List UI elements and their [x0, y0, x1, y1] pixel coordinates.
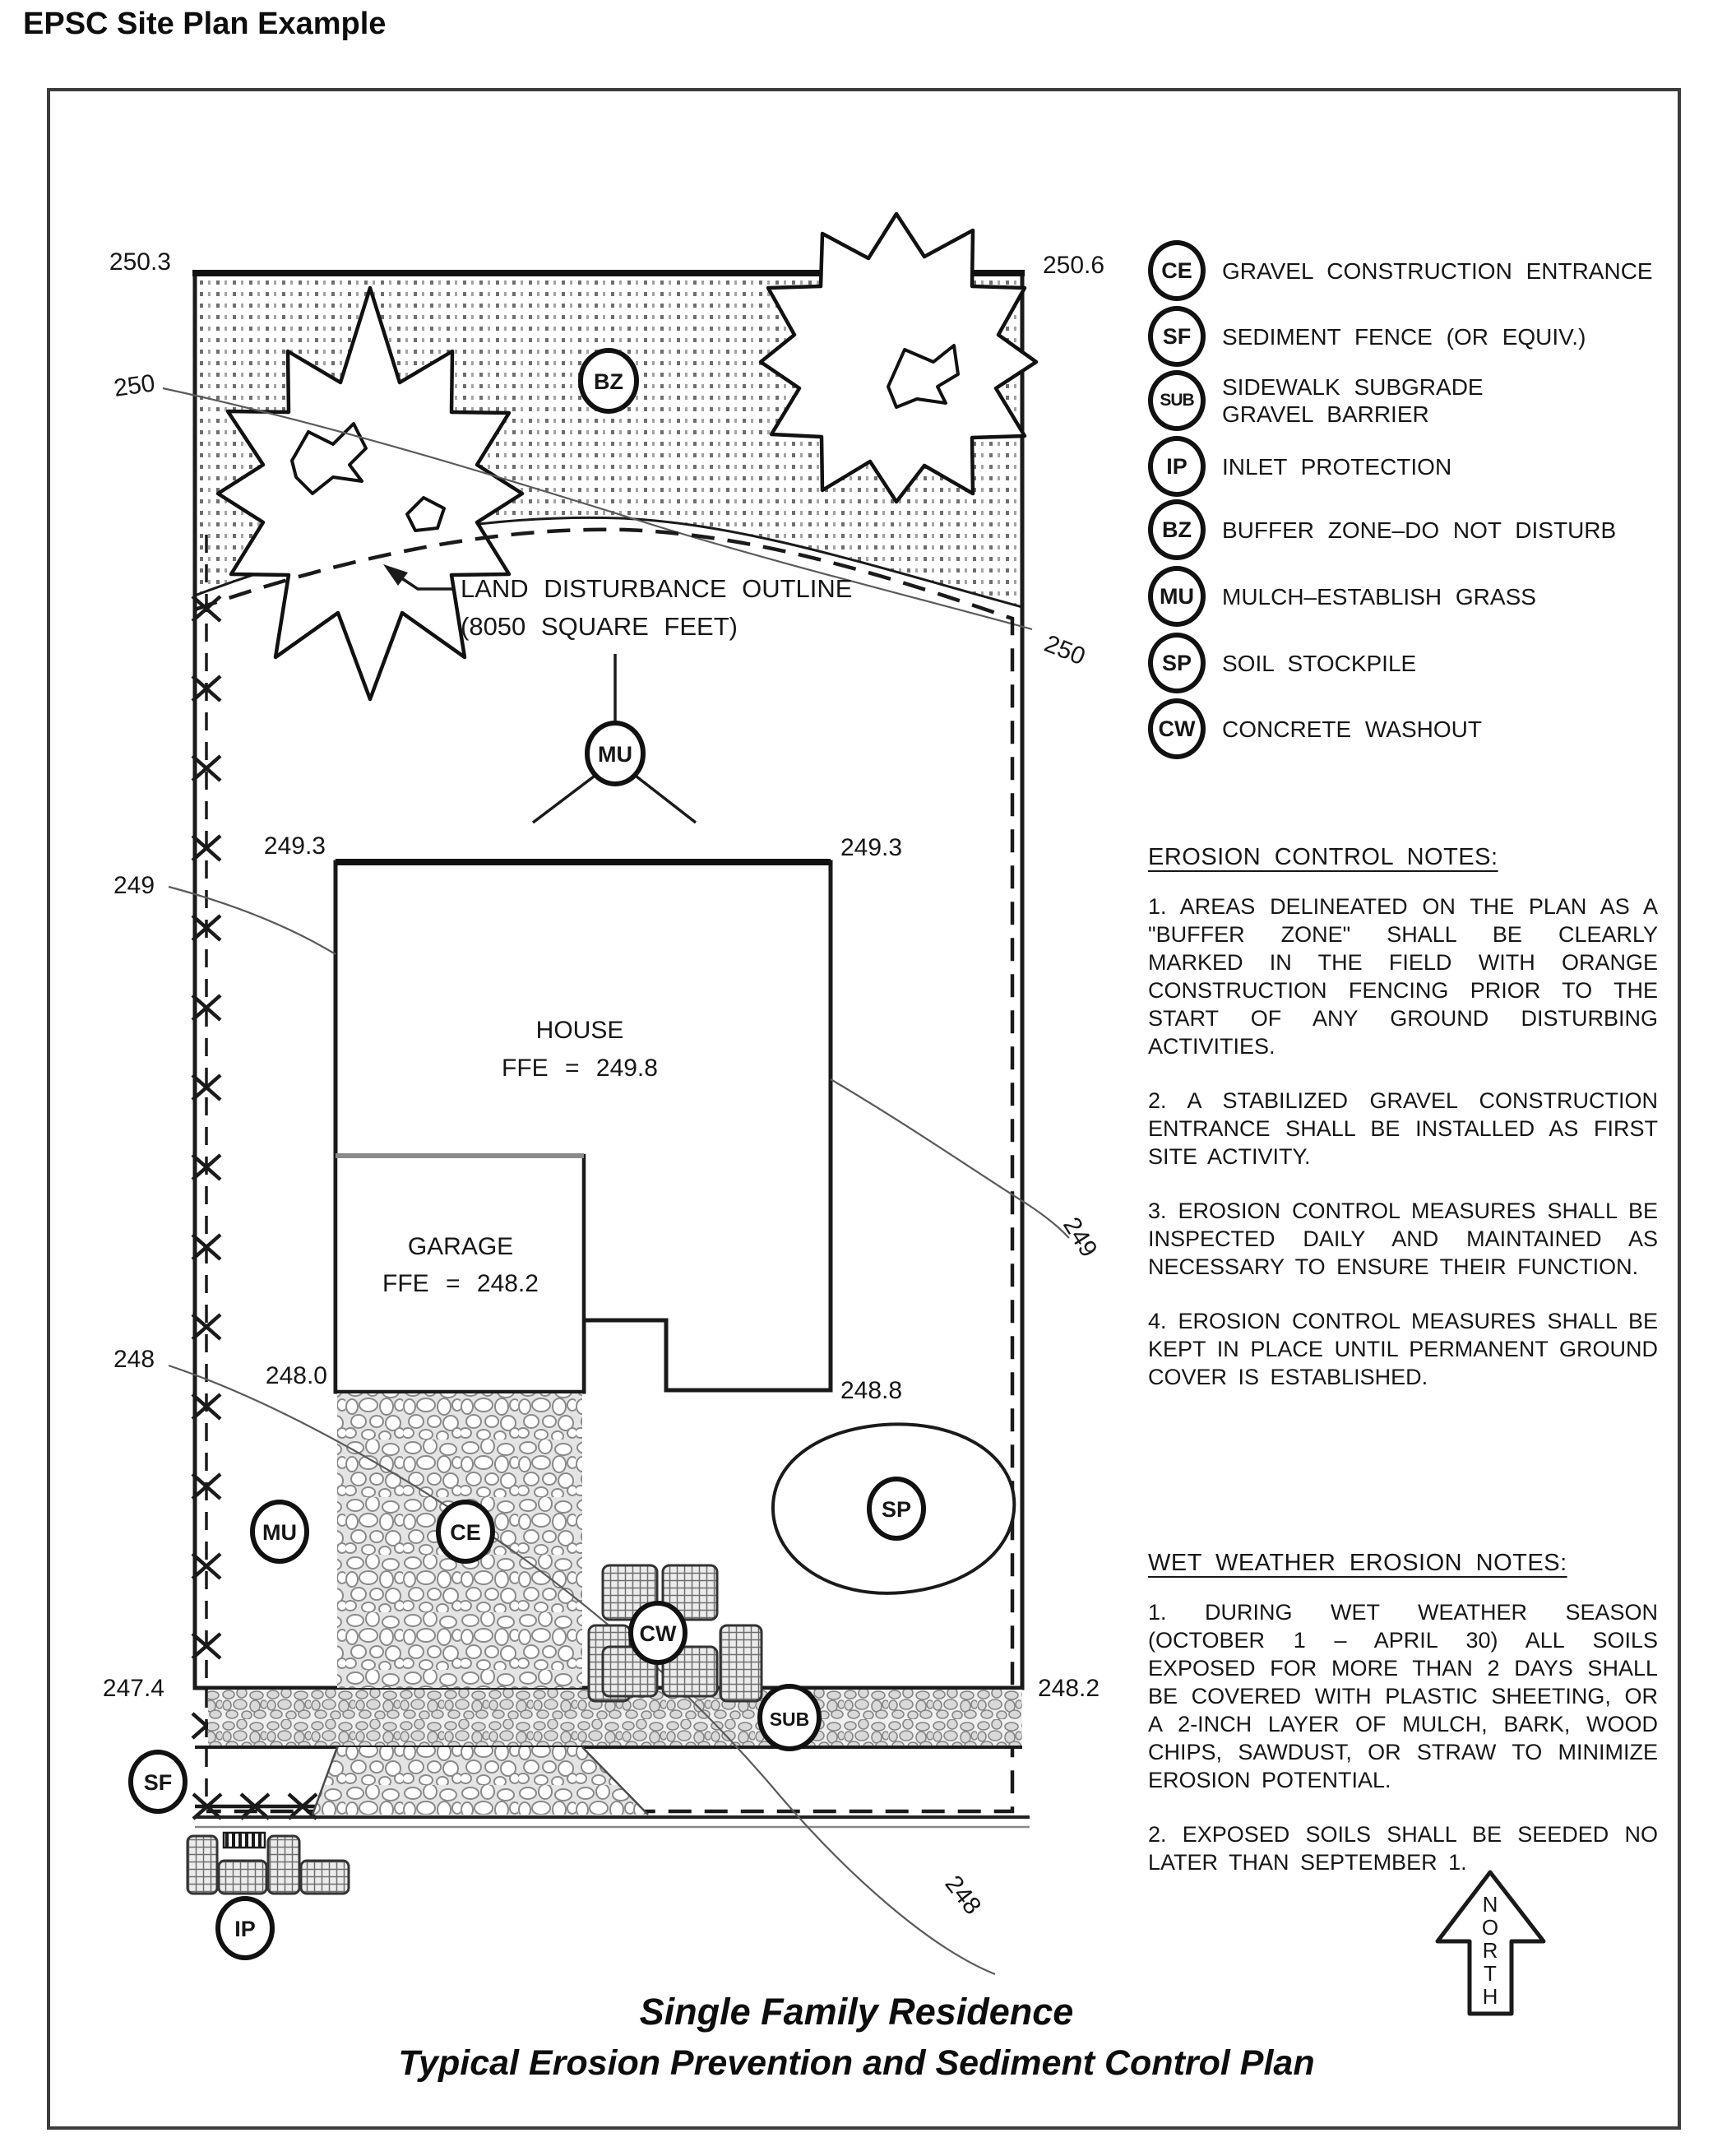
legend-label: SEDIMENT FENCE (OR EQUIV.) — [1222, 323, 1586, 350]
legend-item-ip: IP INLET PROTECTION — [1148, 436, 1451, 497]
inlet-grate — [224, 1833, 265, 1848]
erosion-note-3: 3. EROSION CONTROL MEASURES SHALL BE INS… — [1148, 1197, 1658, 1281]
erosion-note-2: 2. A STABILIZED GRAVEL CONSTRUCTION ENTR… — [1148, 1087, 1658, 1171]
legend-label: GRAVEL CONSTRUCTION ENTRANCE — [1222, 257, 1653, 285]
ce-symbol-label: CE — [450, 1520, 481, 1545]
sub-legend-icon: SUB — [1148, 370, 1206, 431]
house-label: HOUSE — [536, 1017, 624, 1044]
sp-symbol-label: SP — [882, 1497, 911, 1522]
inlet-protection-bales — [188, 1836, 349, 1894]
legend-label: BUFFER ZONE–DO NOT DISTURB — [1222, 517, 1616, 544]
mu-legend-icon: MU — [1148, 566, 1206, 627]
bz-legend-icon: BZ — [1148, 499, 1206, 560]
ip-symbol-label: IP — [234, 1917, 256, 1941]
legend-item-mu: MU MULCH–ESTABLISH GRASS — [1148, 566, 1536, 627]
corner-elev-top-left: 250.3 — [109, 248, 171, 276]
legend-item-bz: BZ BUFFER ZONE–DO NOT DISTURB — [1148, 499, 1616, 560]
sp-legend-icon: SP — [1148, 633, 1206, 693]
legend-label: MULCH–ESTABLISH GRASS — [1222, 583, 1536, 610]
wet-weather-heading: WET WEATHER EROSION NOTES: — [1148, 1550, 1658, 1577]
contour-248-right-label: 248 — [939, 1871, 986, 1920]
contour-250-left-label: 250 — [112, 369, 156, 402]
cw-legend-icon: CW — [1148, 698, 1206, 759]
erosion-notes-heading: EROSION CONTROL NOTES: — [1148, 844, 1658, 871]
legend-item-sf: SF SEDIMENT FENCE (OR EQUIV.) — [1148, 306, 1586, 367]
legend-item-ce: CE GRAVEL CONSTRUCTION ENTRANCE — [1148, 240, 1653, 301]
corner-elev-top-right: 250.6 — [1043, 252, 1104, 279]
bz-symbol-label: BZ — [594, 369, 623, 394]
erosion-note-4: 4. EROSION CONTROL MEASURES SHALL BE KEP… — [1148, 1307, 1658, 1391]
legend-item-sub: SUB SIDEWALK SUBGRADE GRAVEL BARRIER — [1148, 370, 1484, 431]
contour-248-left-label: 248 — [113, 1346, 155, 1373]
mu-lower-symbol-label: MU — [262, 1520, 297, 1545]
contour-249-right-label: 249 — [1058, 1212, 1103, 1262]
ce-legend-icon: CE — [1148, 240, 1206, 301]
sf-symbol-label: SF — [144, 1770, 173, 1795]
ldo-text-line1: LAND DISTURBANCE OUTLINE — [461, 574, 852, 603]
sediment-fence — [192, 535, 322, 1819]
garage-elev-right: 248.8 — [840, 1377, 902, 1404]
driveway-flare — [313, 1747, 648, 1815]
page: EPSC Site Plan Example — [0, 0, 1713, 2156]
house-ffe-label: FFE = 249.8 — [502, 1055, 658, 1082]
north-letter-r: R — [1483, 1938, 1498, 1963]
garage-ffe-label: FFE = 248.2 — [382, 1270, 539, 1297]
mu-upper-symbol-label: MU — [598, 742, 632, 767]
contour-250-right-label: 250 — [1040, 630, 1089, 670]
corner-elev-bottom-right: 248.2 — [1038, 1675, 1100, 1702]
drawing-title-line1: Single Family Residence — [0, 1991, 1713, 2033]
legend-label: SOIL STOCKPILE — [1222, 650, 1416, 677]
contour-249-left-label: 249 — [113, 872, 155, 899]
drawing-title-line2: Typical Erosion Prevention and Sediment … — [0, 2043, 1713, 2084]
wet-weather-notes: WET WEATHER EROSION NOTES: 1. DURING WET… — [1148, 1550, 1658, 1903]
sub-symbol-label: SUB — [770, 1709, 810, 1730]
wet-weather-note-2: 2. EXPOSED SOILS SHALL BE SEEDED NO LATE… — [1148, 1820, 1658, 1876]
legend-label: INLET PROTECTION — [1222, 453, 1451, 480]
ldo-text-line2: (8050 SQUARE FEET) — [461, 612, 738, 641]
corner-elev-bottom-left: 247.4 — [103, 1675, 164, 1702]
ip-legend-icon: IP — [1148, 436, 1206, 497]
legend-label: SIDEWALK SUBGRADE GRAVEL BARRIER — [1222, 373, 1484, 428]
erosion-note-1: 1. AREAS DELINEATED ON THE PLAN AS A "BU… — [1148, 893, 1658, 1060]
legend-item-cw: CW CONCRETE WASHOUT — [1148, 698, 1482, 759]
contour-249-right-line — [831, 1079, 1069, 1238]
garage-elev-left: 248.0 — [266, 1362, 327, 1389]
sf-legend-icon: SF — [1148, 306, 1206, 367]
legend-label: CONCRETE WASHOUT — [1222, 716, 1482, 743]
house-elev-left: 249.3 — [264, 832, 326, 860]
wet-weather-note-1: 1. DURING WET WEATHER SEASON (OCTOBER 1 … — [1148, 1598, 1658, 1794]
garage-label: GARAGE — [408, 1233, 513, 1260]
house-elev-right: 249.3 — [840, 834, 902, 861]
north-letter-t: T — [1484, 1961, 1497, 1986]
north-letter-o: O — [1482, 1915, 1498, 1940]
cw-symbol-label: CW — [640, 1621, 677, 1646]
erosion-control-notes: EROSION CONTROL NOTES: 1. AREAS DELINEAT… — [1148, 844, 1658, 1417]
legend-item-sp: SP SOIL STOCKPILE — [1148, 633, 1416, 693]
